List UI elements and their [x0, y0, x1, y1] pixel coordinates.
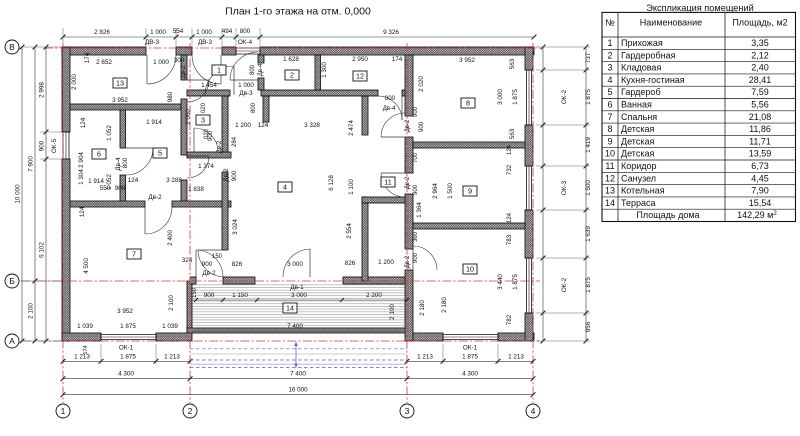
svg-text:700: 700: [413, 152, 419, 163]
svg-text:5: 5: [607, 87, 612, 97]
svg-text:3: 3: [405, 406, 410, 416]
svg-text:Дв-4: Дв-4: [115, 157, 122, 171]
svg-text:14: 14: [286, 304, 294, 313]
svg-text:3 952: 3 952: [459, 57, 475, 64]
svg-text:980: 980: [167, 91, 174, 102]
svg-text:Санузел: Санузел: [621, 173, 656, 183]
svg-text:2 964: 2 964: [432, 183, 439, 199]
svg-text:Дв-1: Дв-1: [290, 284, 304, 291]
svg-text:800: 800: [385, 96, 396, 102]
svg-text:360: 360: [413, 231, 419, 242]
svg-text:3 024: 3 024: [232, 219, 239, 235]
svg-text:563: 563: [509, 128, 516, 139]
svg-text:Дв-2: Дв-2: [217, 140, 223, 153]
svg-text:1 150: 1 150: [232, 292, 248, 299]
svg-text:Спальня: Спальня: [621, 112, 657, 122]
svg-text:10: 10: [605, 149, 615, 159]
svg-text:Дв-4: Дв-4: [383, 106, 396, 112]
svg-text:900: 900: [202, 261, 213, 268]
svg-text:13: 13: [605, 186, 615, 196]
svg-text:150: 150: [192, 287, 198, 298]
svg-text:150: 150: [212, 254, 223, 260]
svg-text:1 213: 1 213: [508, 353, 524, 360]
svg-text:7 400: 7 400: [287, 323, 303, 330]
svg-text:1 039: 1 039: [162, 323, 178, 330]
svg-text:3: 3: [201, 116, 205, 125]
svg-text:1 052: 1 052: [106, 125, 113, 141]
svg-text:9: 9: [607, 136, 612, 146]
svg-text:3 440: 3 440: [497, 274, 504, 290]
svg-text:1 875: 1 875: [585, 277, 592, 293]
svg-text:2 400: 2 400: [167, 230, 174, 246]
svg-text:7: 7: [132, 250, 136, 259]
svg-text:6 128: 6 128: [328, 175, 335, 191]
svg-text:554: 554: [173, 28, 184, 35]
svg-text:284: 284: [232, 136, 238, 147]
svg-text:2 100: 2 100: [168, 295, 175, 311]
svg-text:Дв-2: Дв-2: [181, 65, 187, 78]
svg-text:Дв-2: Дв-2: [405, 255, 411, 268]
svg-text:782: 782: [506, 314, 513, 325]
svg-text:3: 3: [607, 63, 612, 73]
svg-text:Дв-2: Дв-2: [202, 270, 216, 277]
svg-text:Дв-2: Дв-2: [405, 176, 411, 189]
svg-text:826: 826: [232, 261, 243, 268]
svg-text:В: В: [9, 42, 15, 52]
svg-text:900: 900: [39, 140, 46, 151]
svg-text:300: 300: [174, 57, 185, 64]
svg-text:563: 563: [509, 58, 516, 69]
svg-text:174: 174: [83, 345, 89, 354]
svg-text:9: 9: [468, 187, 472, 196]
svg-text:1 364: 1 364: [416, 202, 423, 218]
svg-text:2 998: 2 998: [39, 82, 46, 98]
svg-text:020: 020: [201, 102, 207, 113]
svg-text:2 904: 2 904: [78, 152, 85, 168]
svg-text:2,40: 2,40: [751, 63, 769, 73]
svg-text:2: 2: [188, 406, 193, 416]
svg-text:1 100: 1 100: [348, 179, 355, 195]
svg-text:1 875: 1 875: [120, 323, 136, 330]
svg-text:4: 4: [283, 183, 287, 192]
svg-text:2: 2: [290, 71, 294, 80]
svg-text:3 000: 3 000: [497, 89, 504, 105]
svg-text:4 300: 4 300: [118, 371, 134, 378]
svg-text:1 875: 1 875: [512, 274, 519, 290]
svg-text:Детская: Детская: [621, 149, 654, 159]
svg-text:1 213: 1 213: [417, 353, 433, 360]
svg-text:2 180: 2 180: [441, 297, 448, 313]
svg-text:3,35: 3,35: [751, 38, 769, 48]
svg-text:1: 1: [61, 406, 66, 416]
svg-text:Дв-2: Дв-2: [223, 168, 230, 182]
svg-text:124: 124: [507, 144, 513, 155]
svg-text:ДВ-3: ДВ-3: [145, 39, 160, 46]
svg-text:ОК-1: ОК-1: [119, 345, 134, 352]
svg-text:324: 324: [182, 257, 193, 264]
svg-text:142,29 м2: 142,29 м2: [737, 210, 777, 220]
svg-text:783: 783: [506, 234, 513, 245]
svg-text:2: 2: [607, 50, 612, 60]
svg-text:1 454: 1 454: [201, 82, 217, 89]
svg-text:14: 14: [605, 198, 615, 208]
svg-text:ОК-2: ОК-2: [561, 277, 568, 292]
svg-text:7 900: 7 900: [28, 156, 35, 172]
svg-text:124: 124: [507, 212, 513, 223]
svg-text:2 652: 2 652: [96, 59, 112, 66]
svg-text:1 200: 1 200: [378, 259, 394, 266]
svg-text:Кухня-гостиная: Кухня-гостиная: [621, 75, 685, 85]
svg-text:Детская: Детская: [621, 124, 654, 134]
svg-text:956: 956: [585, 321, 592, 332]
svg-text:900: 900: [413, 252, 419, 263]
svg-text:1: 1: [217, 66, 221, 75]
svg-text:3 288: 3 288: [166, 177, 182, 184]
svg-text:800: 800: [251, 102, 257, 113]
svg-text:7,59: 7,59: [751, 87, 769, 97]
svg-text:800: 800: [122, 157, 129, 168]
svg-text:9 326: 9 326: [383, 29, 399, 36]
svg-text:2 100: 2 100: [389, 304, 396, 320]
svg-text:4,45: 4,45: [751, 173, 769, 183]
svg-text:Наименование: Наименование: [640, 18, 702, 28]
svg-text:1 875: 1 875: [512, 89, 519, 105]
svg-text:11: 11: [605, 161, 614, 171]
svg-text:3 328: 3 328: [304, 122, 320, 129]
svg-text:12: 12: [356, 72, 364, 81]
svg-text:11,86: 11,86: [749, 124, 771, 134]
svg-text:124: 124: [258, 122, 269, 129]
svg-text:4: 4: [531, 406, 536, 416]
svg-text:2 200: 2 200: [366, 292, 382, 299]
svg-text:800: 800: [250, 64, 256, 75]
svg-text:6 102: 6 102: [39, 242, 46, 258]
svg-text:1 419: 1 419: [585, 137, 592, 153]
svg-text:2 474: 2 474: [348, 120, 355, 136]
svg-text:1 039: 1 039: [77, 323, 93, 330]
svg-text:4 500: 4 500: [83, 258, 90, 274]
svg-text:Кладовая: Кладовая: [621, 63, 661, 73]
svg-text:2 000: 2 000: [71, 74, 78, 90]
svg-text:1 200: 1 200: [235, 122, 251, 129]
svg-text:900: 900: [115, 185, 126, 192]
svg-text:900: 900: [419, 121, 425, 132]
svg-text:ОК-1: ОК-1: [463, 345, 478, 352]
svg-text:3 000: 3 000: [287, 261, 303, 268]
svg-text:550: 550: [100, 185, 111, 192]
svg-text:174: 174: [84, 52, 91, 63]
svg-text:6,73: 6,73: [751, 161, 769, 171]
svg-text:8: 8: [607, 124, 612, 134]
svg-text:ОК-5: ОК-5: [51, 138, 58, 153]
svg-text:Площадь дома: Площадь дома: [636, 210, 699, 220]
svg-text:124: 124: [79, 206, 86, 217]
svg-text:826: 826: [345, 260, 356, 267]
svg-text:900: 900: [413, 184, 419, 195]
svg-text:1 875: 1 875: [120, 353, 136, 360]
svg-text:2,12: 2,12: [751, 50, 769, 60]
svg-text:8: 8: [466, 99, 470, 108]
svg-text:Б: Б: [9, 276, 15, 286]
svg-text:1 000: 1 000: [196, 29, 212, 36]
svg-text:15,54: 15,54: [749, 198, 772, 208]
svg-text:21,08: 21,08: [749, 112, 772, 122]
svg-text:1 500: 1 500: [447, 183, 454, 199]
svg-text:900: 900: [208, 130, 214, 141]
svg-text:Дв-3: Дв-3: [239, 90, 253, 97]
svg-text:800: 800: [240, 28, 251, 35]
svg-text:900: 900: [413, 106, 419, 117]
svg-text:1 875: 1 875: [462, 353, 478, 360]
svg-text:1 000: 1 000: [238, 82, 254, 89]
svg-text:124: 124: [80, 117, 87, 128]
svg-text:16 000: 16 000: [288, 386, 308, 393]
svg-text:Терраса: Терраса: [621, 198, 656, 208]
svg-text:Коридор: Коридор: [621, 161, 657, 171]
svg-text:1 628: 1 628: [283, 56, 299, 63]
svg-text:План 1-го этажа на отм. 0,000: План 1-го этажа на отм. 0,000: [225, 6, 371, 18]
svg-text:494: 494: [222, 28, 233, 35]
svg-text:2 020: 2 020: [418, 76, 425, 92]
svg-text:5,56: 5,56: [751, 100, 769, 110]
svg-text:4 300: 4 300: [462, 371, 478, 378]
svg-text:Гардероб: Гардероб: [621, 87, 661, 97]
svg-text:900: 900: [204, 292, 215, 299]
svg-text:№: №: [605, 18, 615, 28]
svg-text:1 374: 1 374: [198, 163, 214, 170]
svg-text:Дв-2: Дв-2: [148, 194, 162, 201]
svg-text:28,41: 28,41: [749, 75, 772, 85]
svg-text:2 950: 2 950: [352, 56, 368, 63]
svg-text:737: 737: [585, 52, 592, 63]
svg-text:7: 7: [607, 112, 612, 122]
svg-text:6: 6: [607, 100, 612, 110]
svg-text:А: А: [9, 336, 15, 346]
svg-text:1 000: 1 000: [153, 59, 169, 66]
svg-text:4: 4: [607, 75, 612, 85]
svg-text:2 000: 2 000: [185, 109, 192, 125]
svg-text:5: 5: [158, 149, 162, 158]
svg-text:1 304: 1 304: [78, 169, 85, 185]
svg-text:1 639: 1 639: [585, 226, 592, 242]
svg-text:Дв-2: Дв-2: [405, 119, 411, 132]
svg-text:1 500: 1 500: [585, 180, 592, 196]
svg-text:1 914: 1 914: [88, 178, 104, 185]
svg-text:11,71: 11,71: [749, 136, 771, 146]
svg-text:124: 124: [128, 177, 139, 184]
svg-text:3 952: 3 952: [112, 97, 128, 104]
svg-text:1 875: 1 875: [585, 89, 592, 105]
svg-text:ОК-3: ОК-3: [561, 180, 568, 195]
svg-text:Котельная: Котельная: [621, 186, 665, 196]
svg-text:1 838: 1 838: [188, 186, 204, 193]
svg-text:7,90: 7,90: [751, 186, 769, 196]
svg-text:Экспликация помещений: Экспликация помещений: [646, 3, 753, 13]
svg-text:ОК-2: ОК-2: [561, 89, 568, 104]
svg-text:Детская: Детская: [621, 136, 654, 146]
svg-text:2 180: 2 180: [419, 300, 426, 316]
svg-text:732: 732: [506, 164, 513, 175]
svg-text:Ванная: Ванная: [621, 100, 652, 110]
svg-text:1 300: 1 300: [321, 62, 328, 78]
svg-text:ДВ-3: ДВ-3: [198, 39, 213, 46]
svg-text:1 000: 1 000: [150, 29, 166, 36]
svg-text:1 914: 1 914: [146, 119, 162, 126]
svg-text:Площадь, м2: Площадь, м2: [732, 18, 787, 28]
svg-text:3 000: 3 000: [291, 292, 307, 299]
svg-text:Прихожая: Прихожая: [621, 38, 663, 48]
svg-text:2 826: 2 826: [94, 29, 110, 36]
svg-text:10: 10: [466, 265, 474, 274]
svg-text:13: 13: [116, 79, 124, 88]
svg-text:12: 12: [605, 173, 615, 183]
svg-text:3 952: 3 952: [117, 308, 133, 315]
svg-text:Дв-4: Дв-4: [258, 63, 264, 76]
svg-text:1: 1: [607, 38, 612, 48]
svg-text:2 100: 2 100: [28, 303, 35, 319]
svg-text:11: 11: [384, 178, 391, 187]
svg-text:1 213: 1 213: [164, 353, 180, 360]
svg-text:6: 6: [97, 150, 101, 159]
svg-text:2 554: 2 554: [346, 223, 353, 239]
svg-text:13,59: 13,59: [749, 149, 772, 159]
svg-text:7 400: 7 400: [290, 371, 306, 378]
svg-text:Гардеробная: Гардеробная: [621, 50, 676, 60]
svg-text:ОК-4: ОК-4: [238, 39, 253, 46]
svg-text:900: 900: [231, 170, 238, 181]
svg-text:174: 174: [392, 56, 403, 63]
svg-text:10 000: 10 000: [15, 184, 22, 204]
